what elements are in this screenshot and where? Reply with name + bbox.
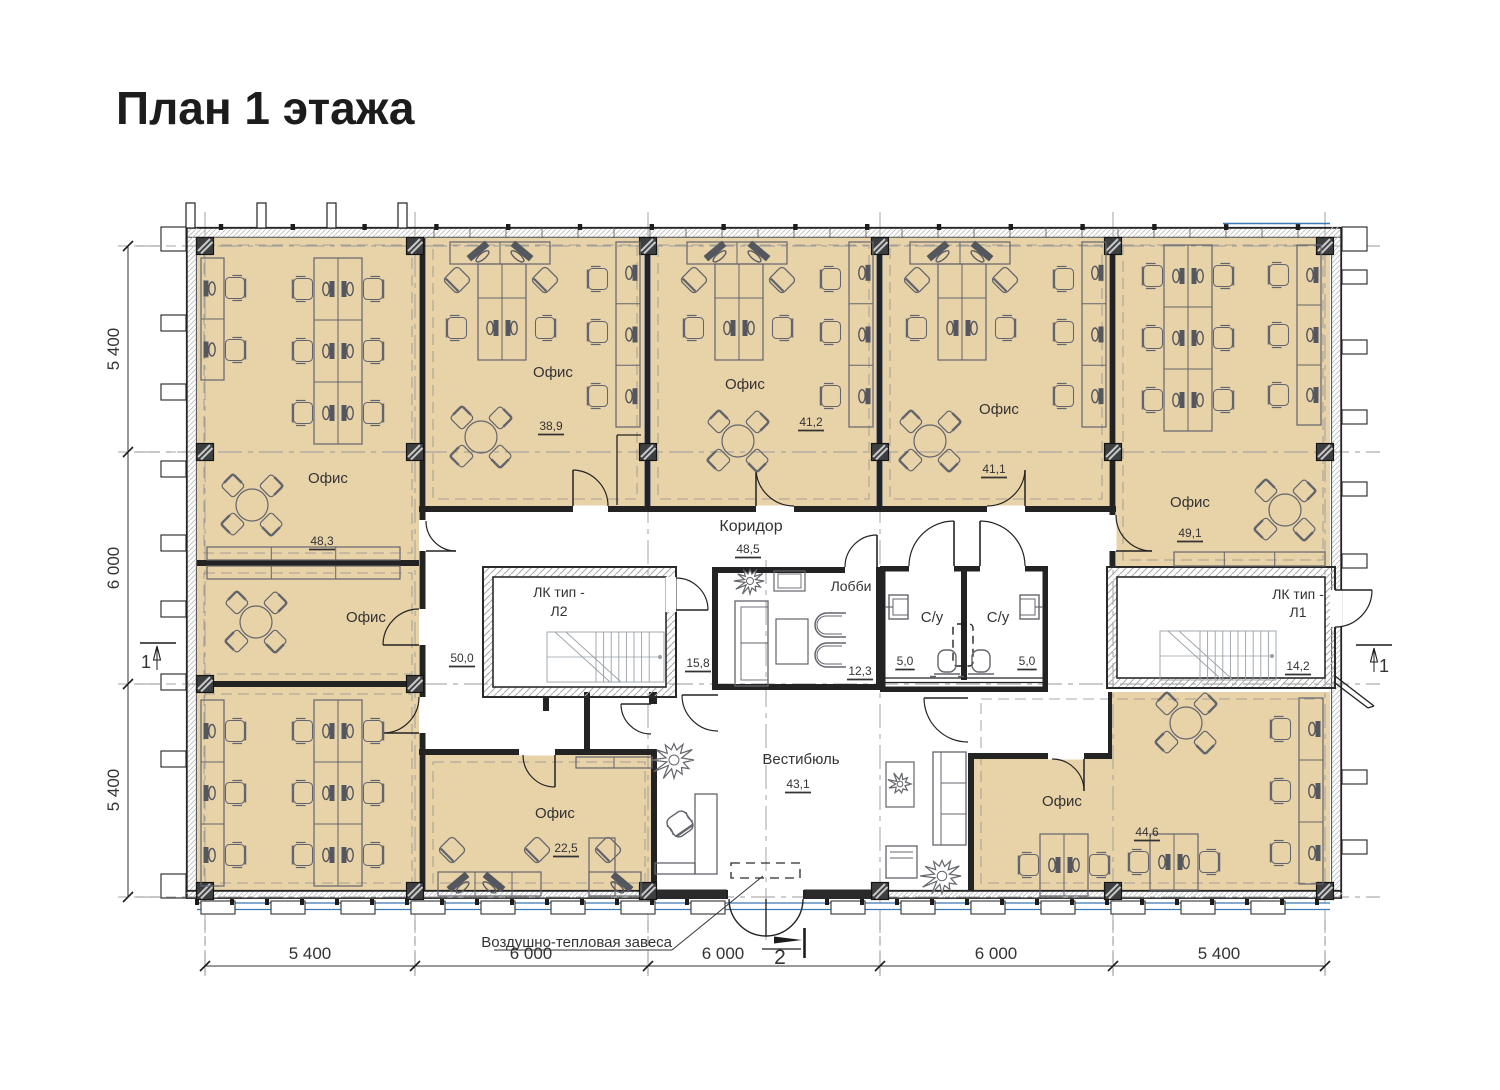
- svg-text:5,0: 5,0: [897, 654, 914, 668]
- svg-text:50,0: 50,0: [450, 651, 474, 665]
- svg-text:6 000: 6 000: [702, 944, 745, 963]
- svg-text:15,8: 15,8: [686, 656, 710, 670]
- svg-text:Офис: Офис: [346, 609, 386, 626]
- svg-text:5 400: 5 400: [104, 328, 123, 371]
- svg-text:План 1 этажа: План 1 этажа: [116, 82, 415, 134]
- svg-text:5 400: 5 400: [289, 944, 332, 963]
- svg-text:Вестибюль: Вестибюль: [762, 751, 839, 768]
- svg-text:5 400: 5 400: [1198, 944, 1241, 963]
- svg-text:Офис: Офис: [1042, 793, 1082, 810]
- svg-text:Офис: Офис: [979, 401, 1019, 418]
- svg-text:6 000: 6 000: [104, 547, 123, 590]
- svg-text:Офис: Офис: [1170, 494, 1210, 511]
- svg-text:22,5: 22,5: [554, 841, 578, 855]
- svg-text:1: 1: [141, 652, 151, 672]
- svg-text:6 000: 6 000: [975, 944, 1018, 963]
- svg-text:Офис: Офис: [308, 470, 348, 487]
- svg-text:38,9: 38,9: [539, 419, 563, 433]
- svg-text:С/у: С/у: [987, 609, 1010, 626]
- svg-text:12,3: 12,3: [848, 664, 872, 678]
- svg-text:41,2: 41,2: [799, 415, 823, 429]
- svg-text:43,1: 43,1: [786, 777, 810, 791]
- svg-text:41,1: 41,1: [982, 462, 1006, 476]
- svg-text:44,6: 44,6: [1135, 825, 1159, 839]
- svg-text:ЛК тип -: ЛК тип -: [1272, 586, 1324, 602]
- svg-text:Коридор: Коридор: [719, 518, 782, 535]
- svg-text:14,2: 14,2: [1286, 659, 1310, 673]
- svg-text:С/у: С/у: [921, 609, 944, 626]
- svg-text:ЛК тип -: ЛК тип -: [533, 584, 585, 600]
- svg-text:6 000: 6 000: [510, 944, 553, 963]
- svg-text:48,3: 48,3: [310, 534, 334, 548]
- svg-text:Офис: Офис: [725, 376, 765, 393]
- svg-text:5,0: 5,0: [1019, 654, 1036, 668]
- svg-text:Л1: Л1: [1290, 604, 1307, 620]
- svg-text:Офис: Офис: [533, 364, 573, 381]
- svg-text:Офис: Офис: [535, 805, 575, 822]
- svg-text:Лобби: Лобби: [831, 578, 872, 594]
- svg-text:48,5: 48,5: [736, 542, 760, 556]
- svg-text:Л2: Л2: [551, 603, 568, 619]
- svg-text:1: 1: [1379, 656, 1389, 676]
- svg-text:49,1: 49,1: [1178, 526, 1202, 540]
- svg-text:5 400: 5 400: [104, 769, 123, 812]
